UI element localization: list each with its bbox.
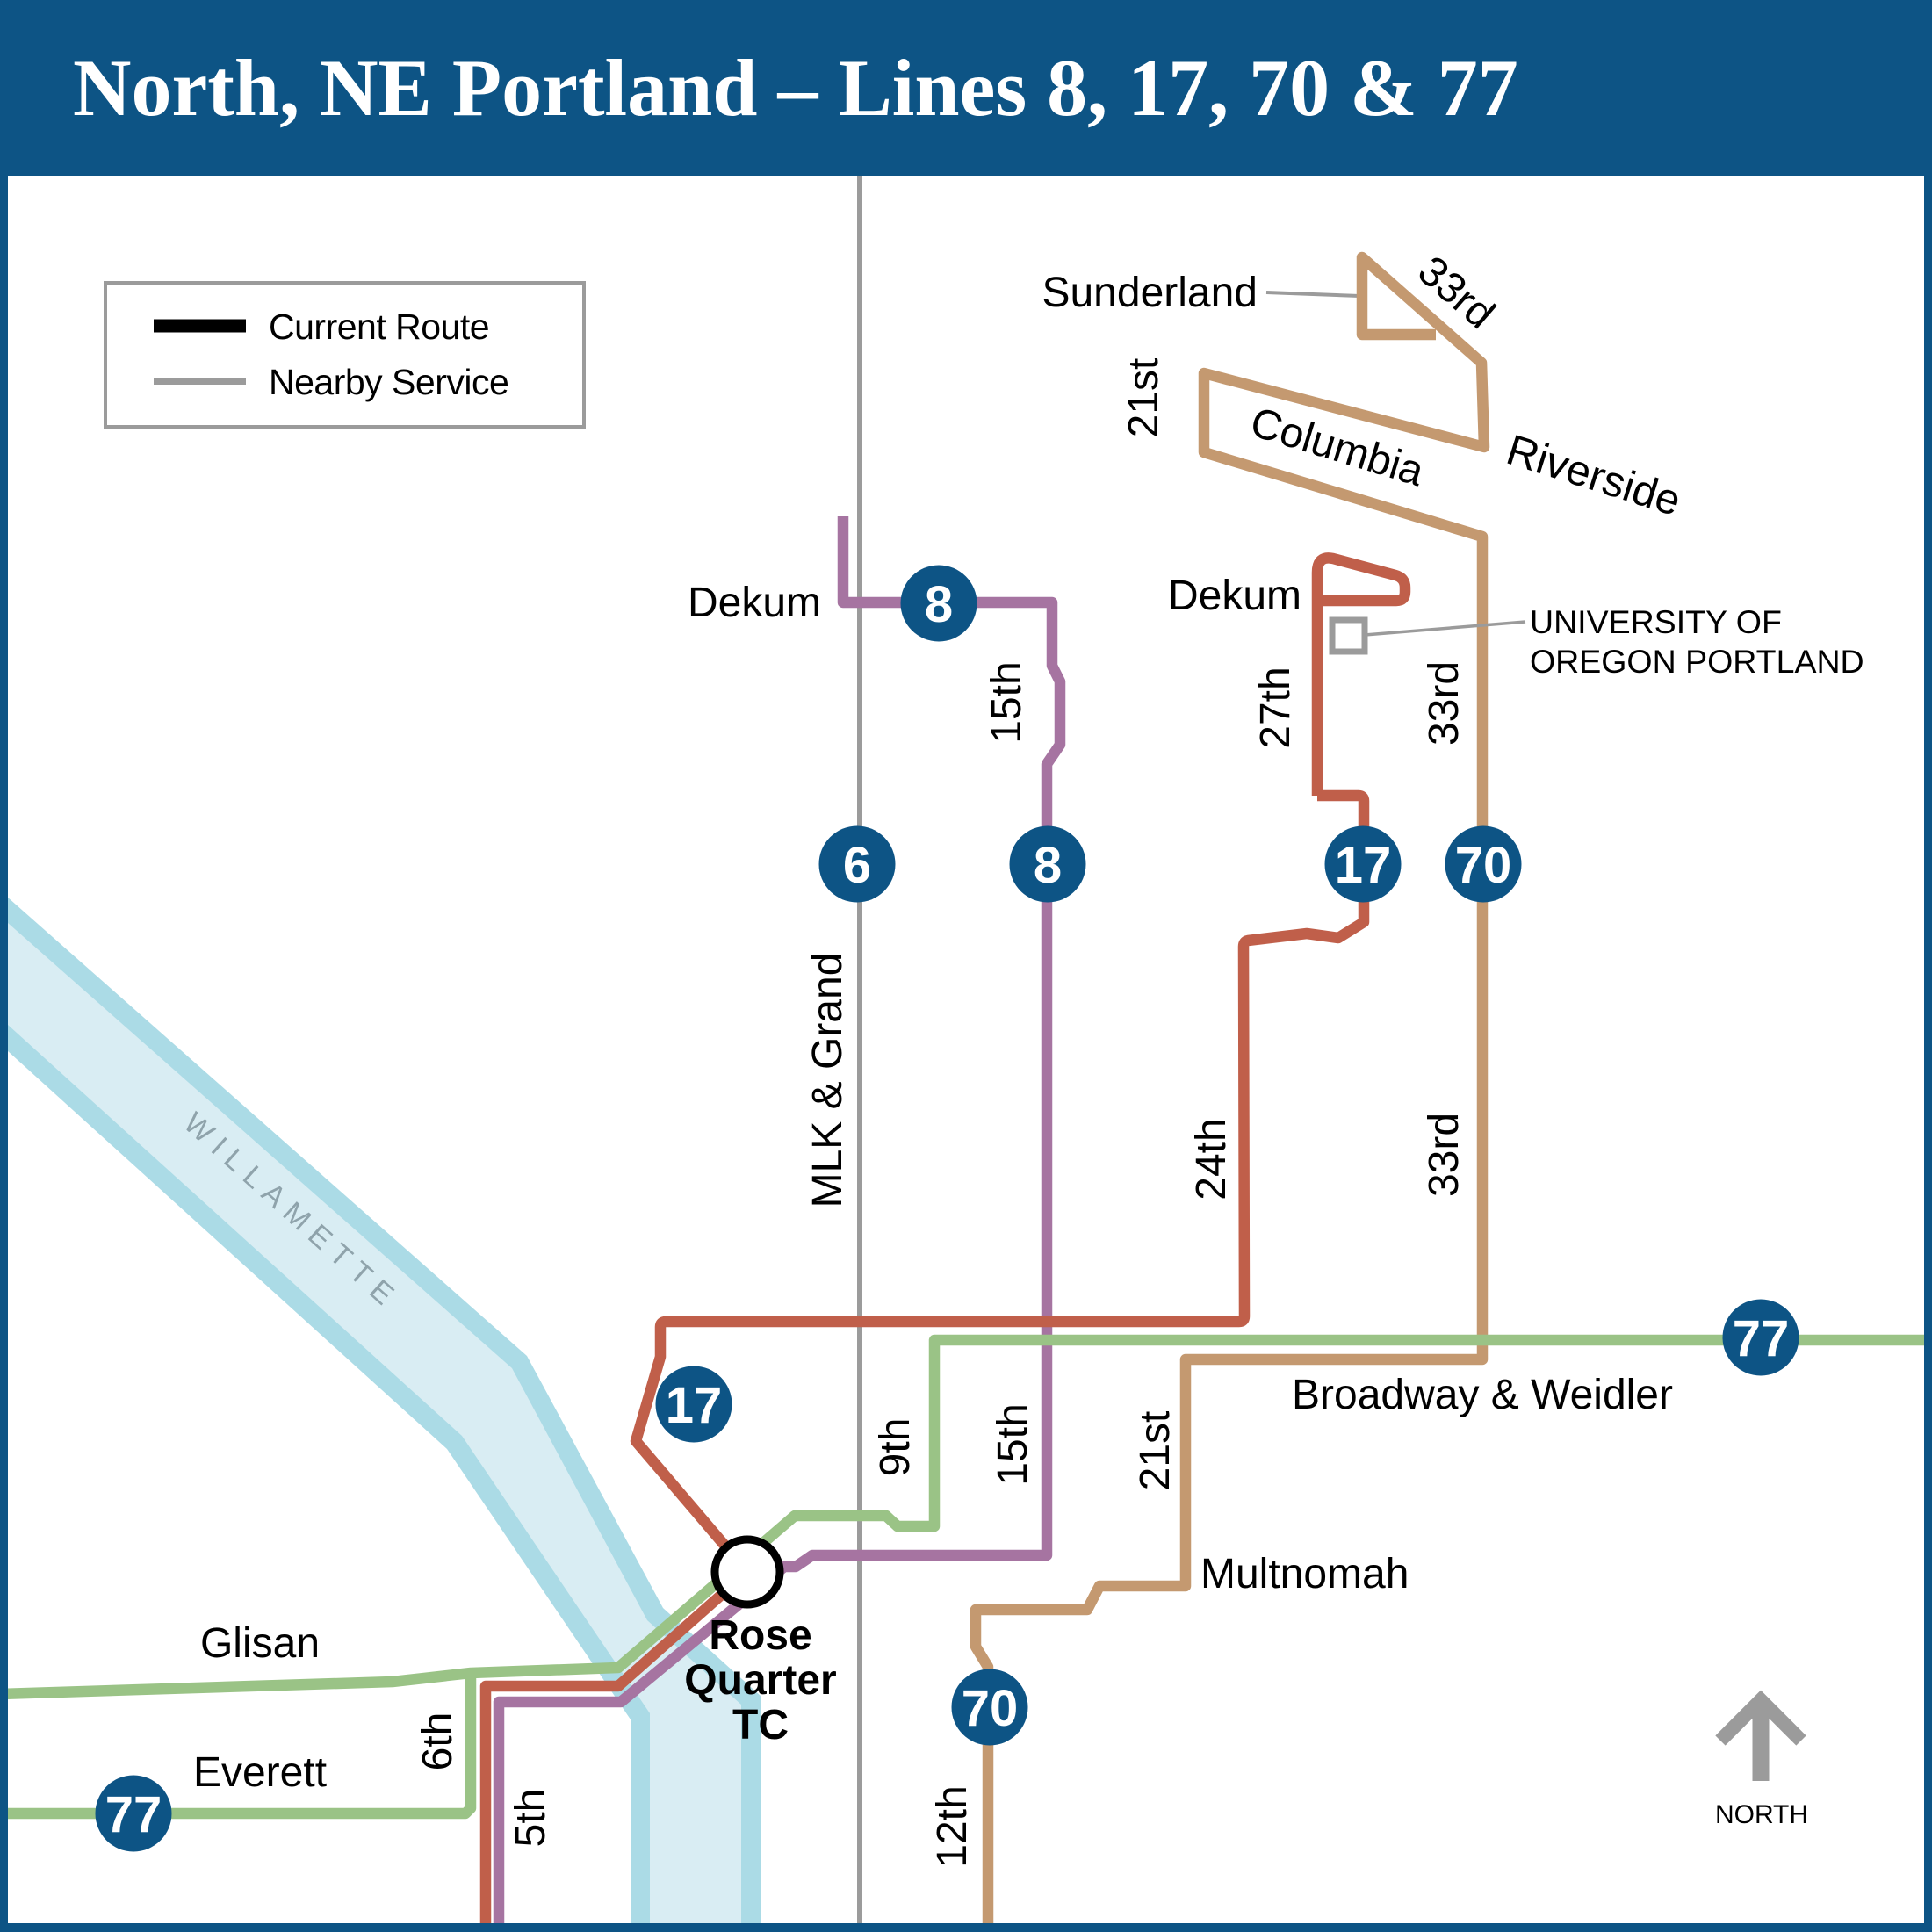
- svg-text:70: 70: [962, 1680, 1019, 1737]
- svg-text:UNIVERSITY OF: UNIVERSITY OF: [1530, 603, 1782, 640]
- svg-text:Everett: Everett: [193, 1749, 327, 1796]
- svg-text:9th: 9th: [872, 1418, 919, 1477]
- svg-text:24th: 24th: [1188, 1118, 1235, 1200]
- svg-text:15th: 15th: [984, 661, 1030, 743]
- svg-text:Dekum: Dekum: [688, 580, 821, 626]
- svg-text:6th: 6th: [415, 1712, 461, 1771]
- svg-text:6: 6: [843, 837, 871, 894]
- svg-text:17: 17: [666, 1377, 723, 1434]
- svg-text:70: 70: [1455, 837, 1512, 894]
- svg-text:Dekum: Dekum: [1168, 573, 1301, 619]
- svg-text:Multnomah: Multnomah: [1200, 1551, 1409, 1597]
- svg-text:Current Route: Current Route: [269, 306, 489, 347]
- svg-text:33rd: 33rd: [1421, 1113, 1467, 1197]
- svg-text:15th: 15th: [990, 1403, 1036, 1485]
- svg-text:8: 8: [925, 576, 953, 633]
- svg-text:North, NE Portland – Lines 8,: North, NE Portland – Lines 8, 17, 70 & 7…: [73, 43, 1518, 133]
- svg-text:Sunderland: Sunderland: [1042, 270, 1258, 316]
- svg-text:MLK & Grand: MLK & Grand: [804, 953, 851, 1208]
- svg-text:8: 8: [1034, 837, 1062, 894]
- svg-text:12th: 12th: [929, 1785, 976, 1867]
- svg-text:TC: TC: [732, 1702, 789, 1748]
- svg-text:Quarter: Quarter: [684, 1657, 836, 1704]
- svg-text:5th: 5th: [508, 1789, 554, 1848]
- svg-text:77: 77: [105, 1786, 162, 1843]
- svg-text:33rd: 33rd: [1421, 661, 1467, 746]
- svg-text:Nearby Service: Nearby Service: [269, 362, 508, 402]
- svg-text:Rose: Rose: [709, 1612, 811, 1659]
- svg-text:Broadway & Weidler: Broadway & Weidler: [1292, 1372, 1673, 1418]
- svg-text:17: 17: [1335, 837, 1392, 894]
- svg-text:OREGON PORTLAND: OREGON PORTLAND: [1530, 643, 1864, 680]
- svg-text:Glisan: Glisan: [200, 1620, 320, 1667]
- svg-text:77: 77: [1733, 1310, 1790, 1367]
- svg-text:27th: 27th: [1252, 667, 1299, 748]
- svg-text:NORTH: NORTH: [1715, 1800, 1808, 1829]
- svg-text:21st: 21st: [1121, 358, 1167, 438]
- svg-text:21st: 21st: [1132, 1411, 1179, 1491]
